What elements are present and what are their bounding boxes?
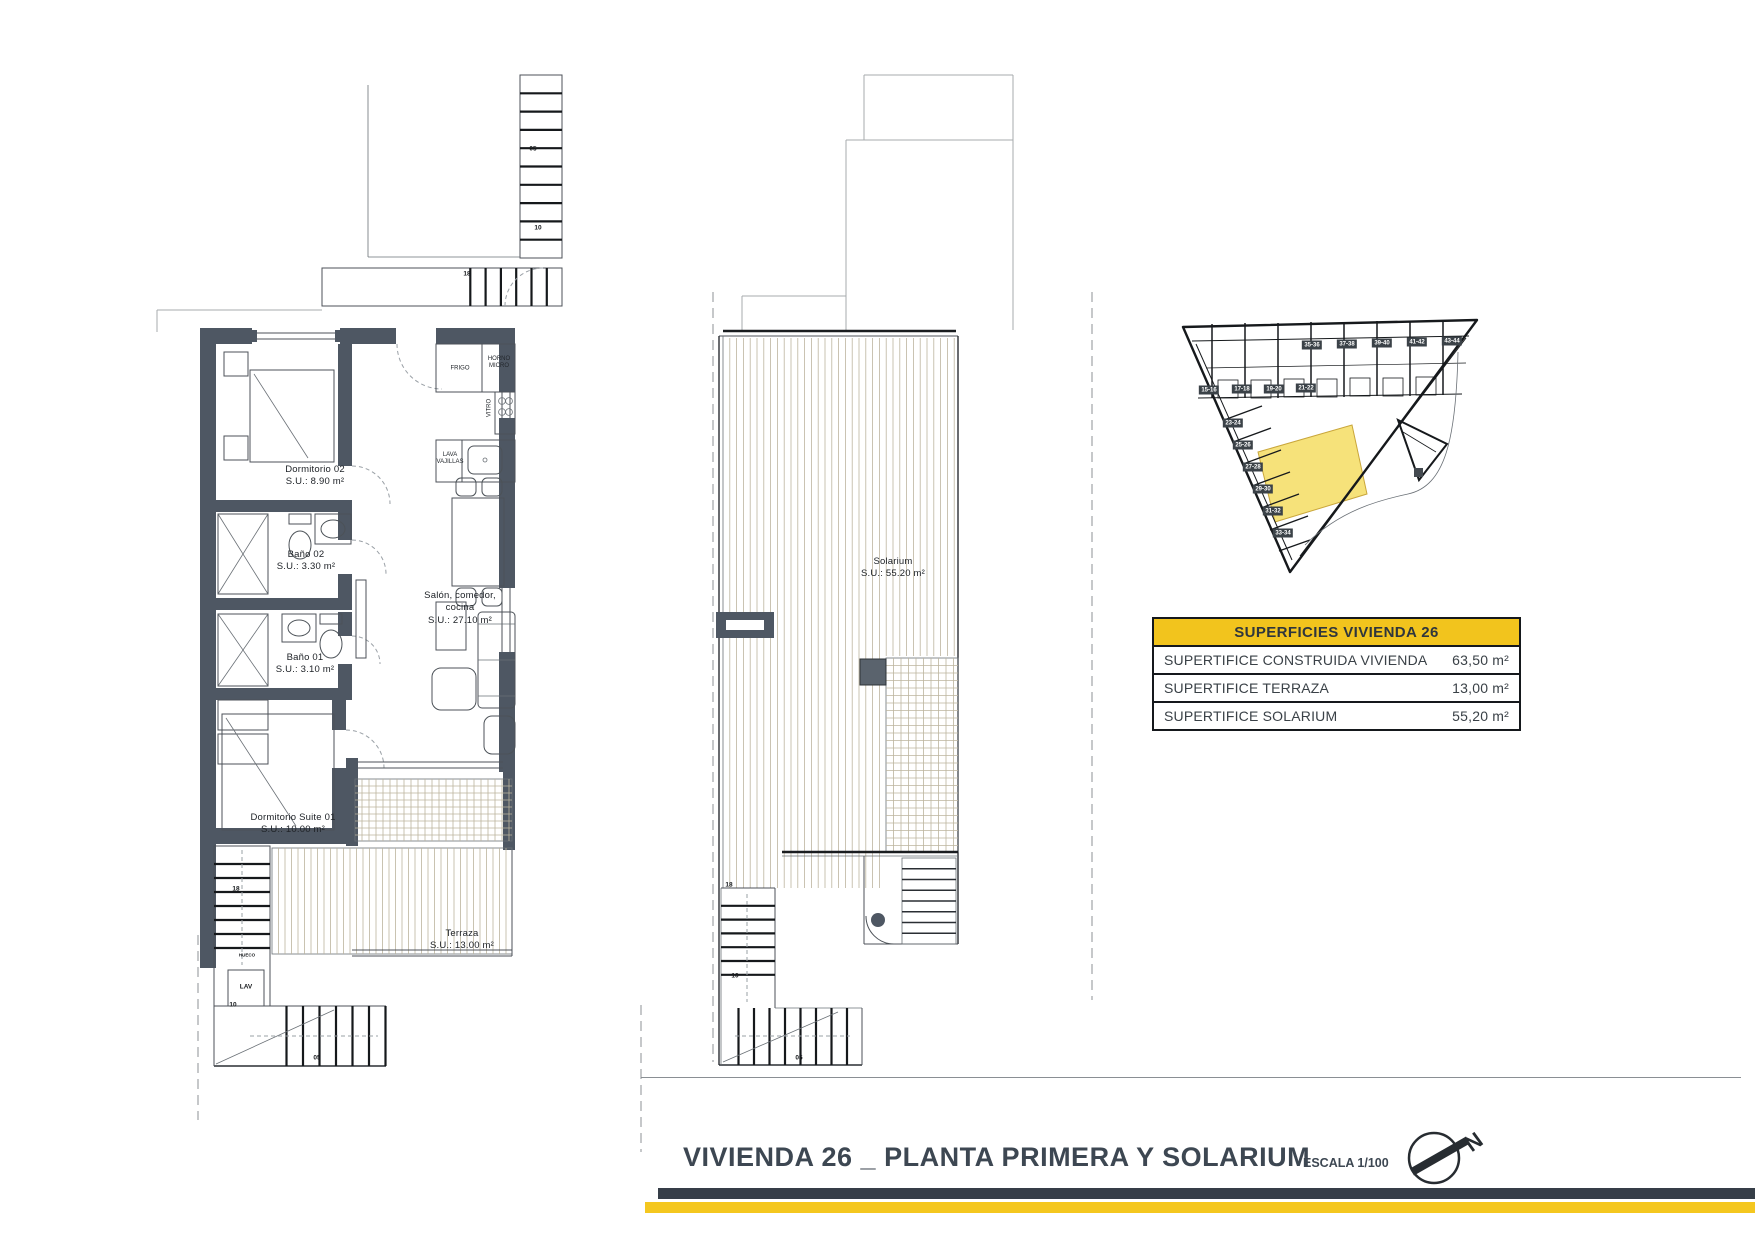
room-label-bano-01: Baño 01 S.U.: 3.10 m²: [276, 652, 335, 677]
stair-num: 10: [229, 1002, 236, 1009]
label-horno-micro: HORNO MICRO: [488, 356, 510, 370]
row-label: SUPERTIFICE TERRAZA: [1164, 680, 1329, 696]
unit-tag: 41-42: [1407, 338, 1427, 347]
room-label-bano-02: Baño 02 S.U.: 3.30 m²: [277, 549, 336, 574]
label-frigo: FRIGO: [451, 366, 470, 373]
stair-num: 05: [313, 1055, 320, 1062]
unit-tag: 33-34: [1273, 529, 1293, 538]
north-arrow-icon: N: [1409, 1127, 1487, 1183]
row-label: SUPERTIFICE CONSTRUIDA VIVIENDA: [1164, 652, 1427, 668]
plan2-bottom-stairs: [721, 888, 862, 1065]
unit-tag: 19-20: [1264, 385, 1284, 394]
unit-tag: 21-22: [1296, 384, 1316, 393]
unit-tag: 43-44: [1442, 337, 1462, 346]
label-vitro: VITRO: [487, 399, 494, 417]
drawing-sheet: N Dormitorio 02 S.U.: 8.90 m² Baño 02 S.…: [0, 0, 1755, 1249]
unit-tag: 15-16: [1199, 386, 1219, 395]
stair-num: LAV: [240, 984, 253, 991]
unit-tag: 29-30: [1253, 485, 1273, 494]
unit-tag: 35-36: [1302, 341, 1322, 350]
room-label-dormitorio-02: Dormitorio 02 S.U.: 8.90 m²: [285, 464, 345, 489]
room-label-terraza: Terraza S.U.: 13.00 m²: [430, 928, 494, 953]
stair-num: 18: [232, 886, 239, 893]
row-value: 55,20 m²: [1452, 708, 1509, 724]
unit-tag: 23-24: [1223, 419, 1243, 428]
plan1-walls: [200, 328, 515, 968]
unit-tag: 39-40: [1372, 339, 1392, 348]
unit-tag: 27-28: [1243, 463, 1263, 472]
unit-tag: 17-18: [1232, 385, 1252, 394]
unit-tag: 31-32: [1263, 507, 1283, 516]
stair-num: HUECO: [239, 953, 255, 958]
table-row: SUPERTIFICE SOLARIUM 55,20 m²: [1154, 703, 1519, 729]
plan1-furniture: [218, 344, 515, 830]
surfaces-table: SUPERFICIES VIVIENDA 26 SUPERTIFICE CONS…: [1152, 617, 1521, 731]
footer-bar-yellow: [645, 1202, 1755, 1213]
label-lavavajillas: LAVA VAJILLAS: [437, 452, 464, 466]
footer-bar-dark: [658, 1188, 1755, 1199]
room-label-solarium: Solarium S.U.: 55.20 m²: [861, 556, 925, 581]
sheet-title: VIVIENDA 26 _ PLANTA PRIMERA Y SOLARIUM: [683, 1142, 1310, 1173]
plan2-top-outline: [742, 75, 1013, 330]
north-label: N: [1460, 1127, 1488, 1157]
room-label-salon: Salón, comedor, cocina S.U.: 27.10 m²: [424, 590, 496, 627]
stair-num: 18: [463, 271, 470, 278]
table-row: SUPERTIFICE CONSTRUIDA VIVIENDA 63,50 m²: [1154, 647, 1519, 675]
stair-num: 10: [731, 973, 738, 980]
row-value: 63,50 m²: [1452, 652, 1509, 668]
plan1-top-stairs: [157, 75, 562, 332]
unit-tag: 25-26: [1233, 441, 1253, 450]
row-label: SUPERTIFICE SOLARIUM: [1164, 708, 1337, 724]
footer-rule: [641, 1077, 1741, 1078]
row-value: 13,00 m²: [1452, 680, 1509, 696]
room-label-suite-01: Dormitorio Suite 01 S.U.: 10.00 m²: [250, 812, 335, 837]
scale-label: ESCALA 1/100: [1303, 1156, 1389, 1170]
stair-num: 05: [529, 146, 536, 153]
stair-num: 18: [725, 882, 732, 889]
stair-num: 05: [795, 1055, 802, 1062]
stair-num: 10: [534, 225, 541, 232]
plan2-deck: [716, 331, 958, 1065]
table-row: SUPERTIFICE TERRAZA 13,00 m²: [1154, 675, 1519, 703]
unit-tag: 37-38: [1337, 340, 1357, 349]
site-plan: [1183, 320, 1477, 572]
surfaces-table-header: SUPERFICIES VIVIENDA 26: [1154, 619, 1519, 647]
